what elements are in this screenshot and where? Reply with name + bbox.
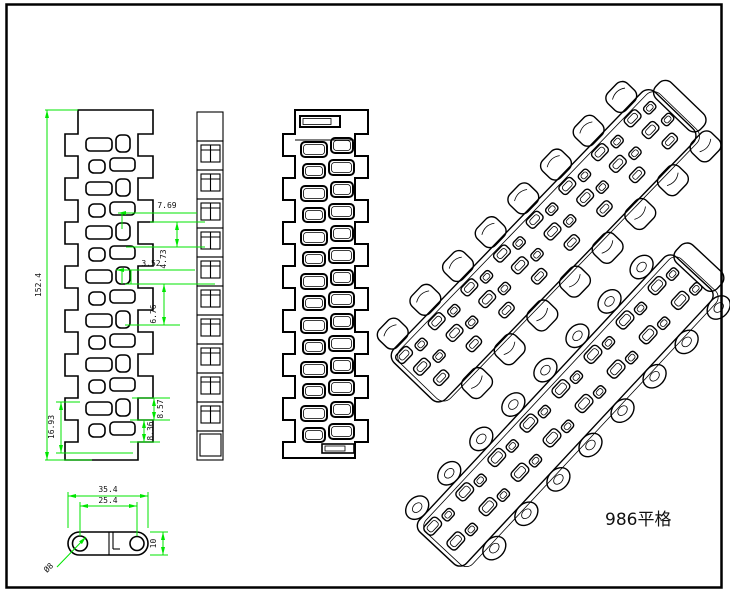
cad-drawing-stage: 152.4 16.93 7.69 4.73 3.52 6.76 8.57 8.3… bbox=[0, 0, 730, 595]
dim-end-pitch-text: 16.93 bbox=[47, 415, 56, 439]
bottom-view bbox=[283, 110, 368, 458]
dim-overall-length-text: 152.4 bbox=[34, 273, 43, 297]
cad-canvas: 152.4 16.93 7.69 4.73 3.52 6.76 8.57 8.3… bbox=[0, 0, 730, 595]
side-view bbox=[197, 112, 223, 460]
dim-hole-pitch-text: 25.4 bbox=[98, 496, 117, 505]
dim-hole-diameter-text: Ø8 bbox=[41, 560, 55, 574]
dim-edge-a-text: 8.57 bbox=[156, 399, 165, 418]
dim-plate-width-text: 10 bbox=[149, 539, 158, 549]
dim-slot-length-text: 6.76 bbox=[149, 304, 158, 323]
part-title: 986平格 bbox=[605, 510, 671, 530]
dim-slot-spacing-text: 7.69 bbox=[157, 201, 176, 210]
dimensions-front-view: 152.4 16.93 7.69 4.73 3.52 6.76 8.57 8.3… bbox=[34, 110, 215, 460]
dim-slot-offset-text: 3.52 bbox=[141, 259, 160, 268]
dim-edge-b-text: 8.36 bbox=[146, 421, 155, 440]
front-view bbox=[65, 110, 153, 460]
dim-plate-length-text: 35.4 bbox=[98, 485, 117, 494]
dimensions-detail-view: 35.4 25.4 10 Ø8 bbox=[41, 485, 168, 574]
